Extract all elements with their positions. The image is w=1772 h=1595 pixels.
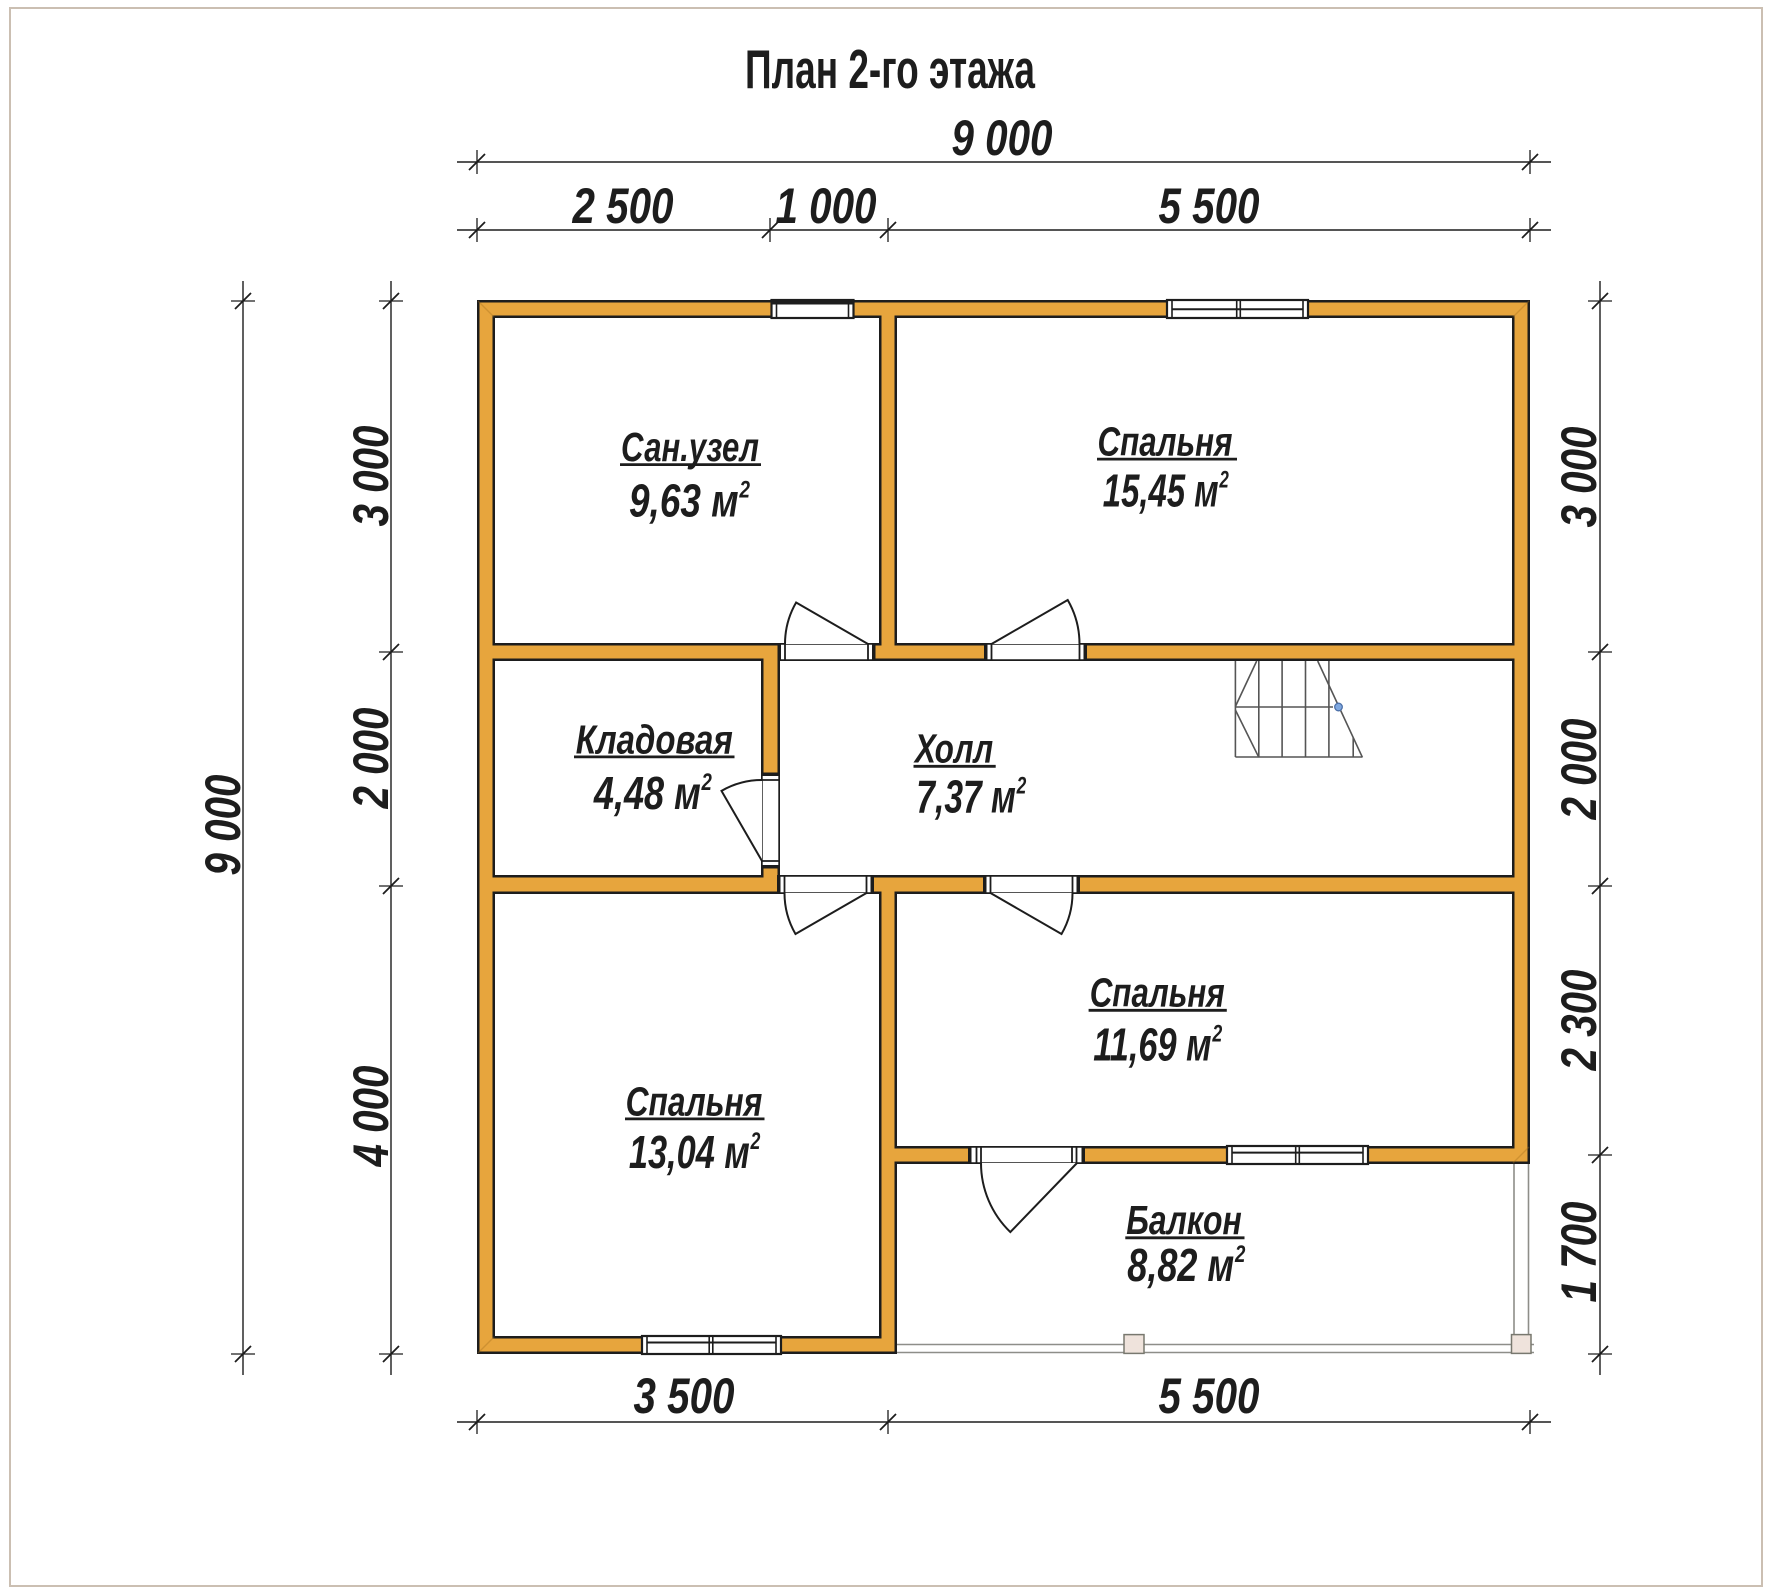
svg-text:Спальня: Спальня xyxy=(626,1078,763,1124)
svg-text:9 000: 9 000 xyxy=(952,110,1053,166)
svg-text:2 500: 2 500 xyxy=(572,178,674,234)
svg-text:2 000: 2 000 xyxy=(1551,718,1607,820)
svg-text:3 000: 3 000 xyxy=(343,425,399,526)
svg-text:11,69 м2: 11,69 м2 xyxy=(1093,1019,1222,1071)
svg-text:2 000: 2 000 xyxy=(343,707,399,809)
svg-text:3 000: 3 000 xyxy=(1551,426,1607,527)
svg-text:9,63 м2: 9,63 м2 xyxy=(629,475,751,527)
svg-text:7,37 м2: 7,37 м2 xyxy=(916,771,1026,823)
svg-text:5 500: 5 500 xyxy=(1159,1368,1260,1424)
svg-text:13,04 м2: 13,04 м2 xyxy=(629,1126,761,1178)
svg-text:3 500: 3 500 xyxy=(634,1368,735,1424)
svg-text:5 500: 5 500 xyxy=(1159,178,1260,234)
svg-text:План 2-го этажа: План 2-го этажа xyxy=(745,39,1035,100)
svg-text:Кладовая: Кладовая xyxy=(576,716,733,762)
svg-text:9 000: 9 000 xyxy=(195,774,251,875)
svg-text:2 300: 2 300 xyxy=(1551,969,1607,1071)
svg-text:Холл: Холл xyxy=(913,726,993,772)
svg-text:Балкон: Балкон xyxy=(1126,1197,1242,1243)
svg-text:8,82 м2: 8,82 м2 xyxy=(1127,1239,1245,1291)
svg-text:Сан.узел: Сан.узел xyxy=(621,424,759,470)
svg-text:Спальня: Спальня xyxy=(1098,419,1233,465)
svg-text:4,48 м2: 4,48 м2 xyxy=(593,767,712,819)
svg-text:4 000: 4 000 xyxy=(343,1065,399,1167)
svg-text:1 000: 1 000 xyxy=(776,178,877,234)
svg-text:1 700: 1 700 xyxy=(1551,1201,1607,1302)
svg-text:Спальня: Спальня xyxy=(1090,970,1225,1016)
svg-text:15,45 м2: 15,45 м2 xyxy=(1103,464,1229,516)
